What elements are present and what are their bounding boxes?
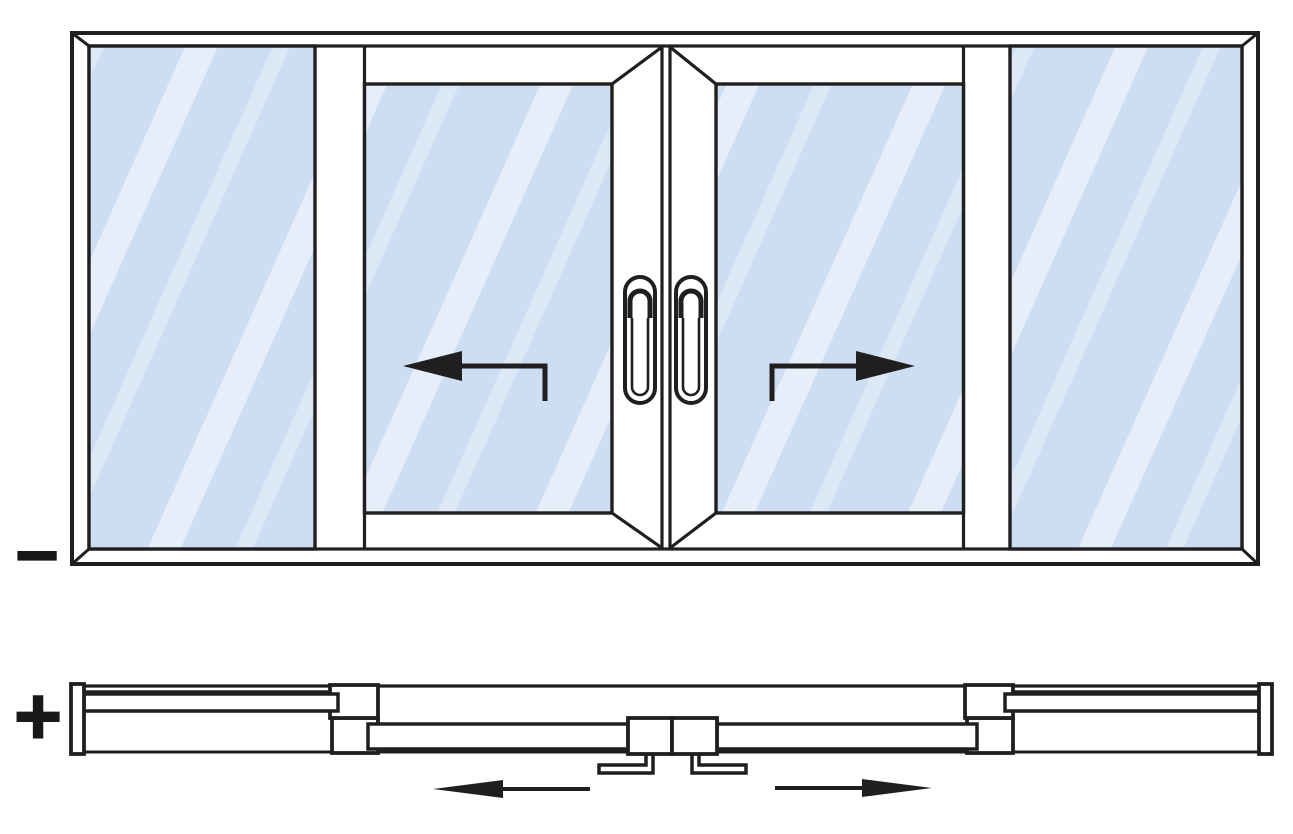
sliding-door-diagram: − <box>0 0 1293 834</box>
plan-meeting-stile-left <box>628 718 672 754</box>
glass-pane-sliding-left <box>365 84 613 513</box>
handle-left[interactable] <box>625 277 655 403</box>
plan-fixed-panel-left <box>84 694 338 711</box>
elevation-view <box>72 33 1258 564</box>
plan-handle-right <box>692 754 746 773</box>
plan-sliding-panel-right <box>717 724 977 749</box>
plan-slide-right-arrow-icon <box>775 779 932 797</box>
glass-pane-sliding-right <box>716 84 964 513</box>
plan-handle-left <box>599 754 653 773</box>
plan-jamb-right <box>1259 684 1272 754</box>
plan-sliding-panel-left <box>368 724 628 749</box>
handle-right-grip <box>681 291 701 318</box>
plan-jamb-left <box>71 684 84 754</box>
plus-symbol: + <box>11 679 65 753</box>
plan-meeting-stile-right <box>672 718 717 754</box>
plan-view <box>71 684 1272 798</box>
plan-fixed-panel-right <box>1005 694 1259 711</box>
handle-right[interactable] <box>676 277 706 403</box>
glass-pane-fixed-right <box>1010 46 1242 549</box>
minus-symbol: − <box>13 520 62 588</box>
plan-slide-left-arrow-icon <box>433 780 590 798</box>
glass-pane-fixed-left <box>89 46 315 549</box>
handle-left-grip <box>630 291 650 318</box>
